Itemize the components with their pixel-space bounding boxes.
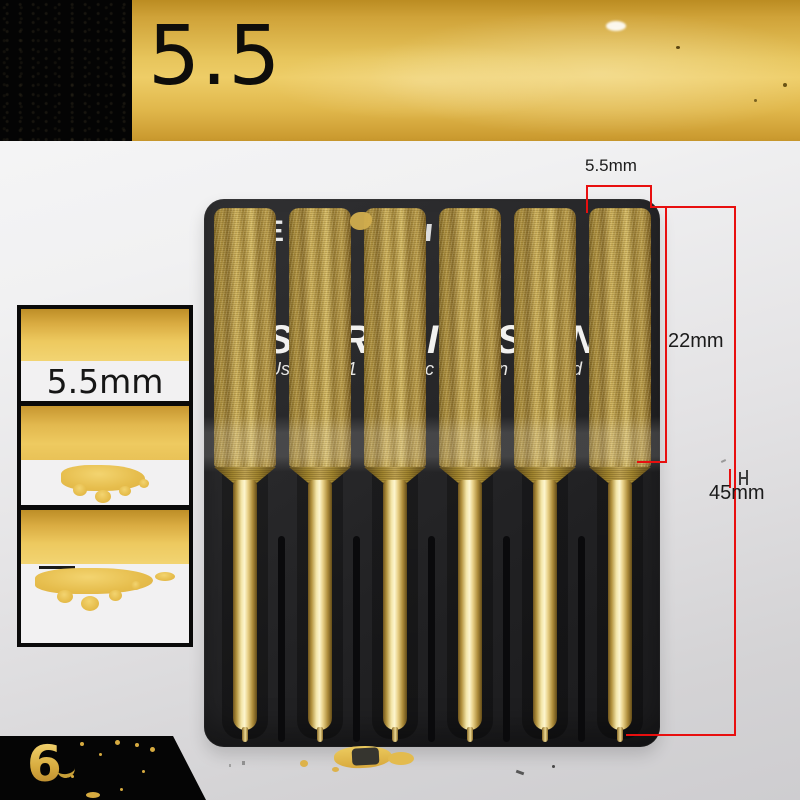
gold-speck: [135, 743, 139, 747]
dim-tick-total-length: [626, 734, 736, 736]
banner-speck: [783, 83, 787, 87]
erased-smudge: [300, 760, 308, 767]
product-package: E S RI I S N Us 1 c in d: [204, 199, 660, 747]
erased-smudge: [131, 581, 141, 590]
artifact-speck: [552, 765, 555, 768]
artifact-speck: [242, 761, 245, 765]
banner-speck: [754, 99, 757, 102]
artifact-speck: [229, 764, 231, 767]
gold-speck: [150, 747, 155, 752]
size-banner: 5.5: [132, 0, 800, 141]
erased-smudge: [81, 596, 99, 611]
shaft-tip: [542, 727, 548, 742]
dim-label-total-length: 45mm: [709, 482, 765, 505]
bit-shaft: [383, 480, 407, 730]
product-listing-image: 5.5 5.5mm E S RI I S N: [0, 0, 800, 800]
artifact-speck: [516, 770, 525, 776]
erased-smudge: [95, 490, 111, 503]
dim-line-diameter: [586, 185, 588, 213]
thumb-gold-band: [21, 406, 189, 460]
banner-size-text: 5.5: [148, 16, 281, 98]
gold-speck: [99, 753, 102, 756]
dim-line-diameter: [587, 185, 652, 187]
burr-bit: [364, 199, 426, 747]
thumbnail-rail: 5.5mm: [17, 305, 193, 647]
erased-smudge: [109, 590, 122, 601]
erased-smudge: [388, 752, 414, 765]
dim-line-total-length: [734, 206, 736, 736]
bit-shaft: [533, 480, 557, 730]
gold-speck: [120, 788, 123, 791]
bit-shaft: [458, 480, 482, 730]
shaft-tip: [242, 727, 248, 742]
banner-speck: [606, 21, 626, 31]
gold-speck: [71, 775, 74, 778]
bit-shaft: [308, 480, 332, 730]
gold-speck: [80, 742, 84, 746]
burr-bit: [439, 199, 501, 747]
tray-slot: [278, 536, 285, 742]
erased-smudge: [155, 572, 175, 581]
gold-speck: [115, 740, 120, 745]
erased-smudge: [332, 767, 339, 772]
dim-tick-head-length: [637, 461, 667, 463]
artifact-glyph: [739, 477, 748, 479]
tray-slot: [578, 536, 585, 742]
gold-speck: [142, 770, 145, 773]
banner-speck: [676, 46, 680, 49]
shaft-tip: [392, 727, 398, 742]
shaft-tip: [467, 727, 473, 742]
print-fragment-bar: [425, 224, 432, 241]
thumb-size-label: 5.5mm: [21, 361, 189, 401]
logo-box: [0, 0, 132, 141]
burr-bit: [514, 199, 576, 747]
erased-smudge: [352, 747, 380, 765]
erased-smudge: [73, 484, 87, 496]
dim-line-top: [650, 206, 736, 208]
tray-slot: [353, 536, 360, 742]
thumb-gold-band: [21, 309, 189, 361]
burr-bit: [214, 199, 276, 747]
reflection-band: [204, 416, 660, 472]
artifact-speck: [721, 459, 726, 463]
tray-slot: [503, 536, 510, 742]
quantity-badge: 6: [0, 736, 206, 800]
dim-label-head-length: 22mm: [668, 330, 724, 353]
erased-smudge: [119, 486, 131, 496]
shaft-tip: [617, 727, 623, 742]
burr-bit: [589, 199, 651, 747]
print-fragment: I: [427, 318, 438, 363]
thumb-gold-band: [21, 510, 189, 564]
tray-slot: [428, 536, 435, 742]
gold-speck: [86, 792, 100, 798]
dim-label-diameter: 5.5mm: [585, 156, 637, 176]
burr-bit: [289, 199, 351, 747]
bit-shaft: [233, 480, 257, 730]
bit-shaft: [608, 480, 632, 730]
shaft-tip: [317, 727, 323, 742]
print-fragment: c: [425, 359, 434, 380]
dim-line-diameter: [650, 185, 652, 208]
dim-line-head-length: [665, 206, 667, 463]
erased-smudge: [57, 590, 73, 603]
erased-smudge: [139, 479, 149, 488]
